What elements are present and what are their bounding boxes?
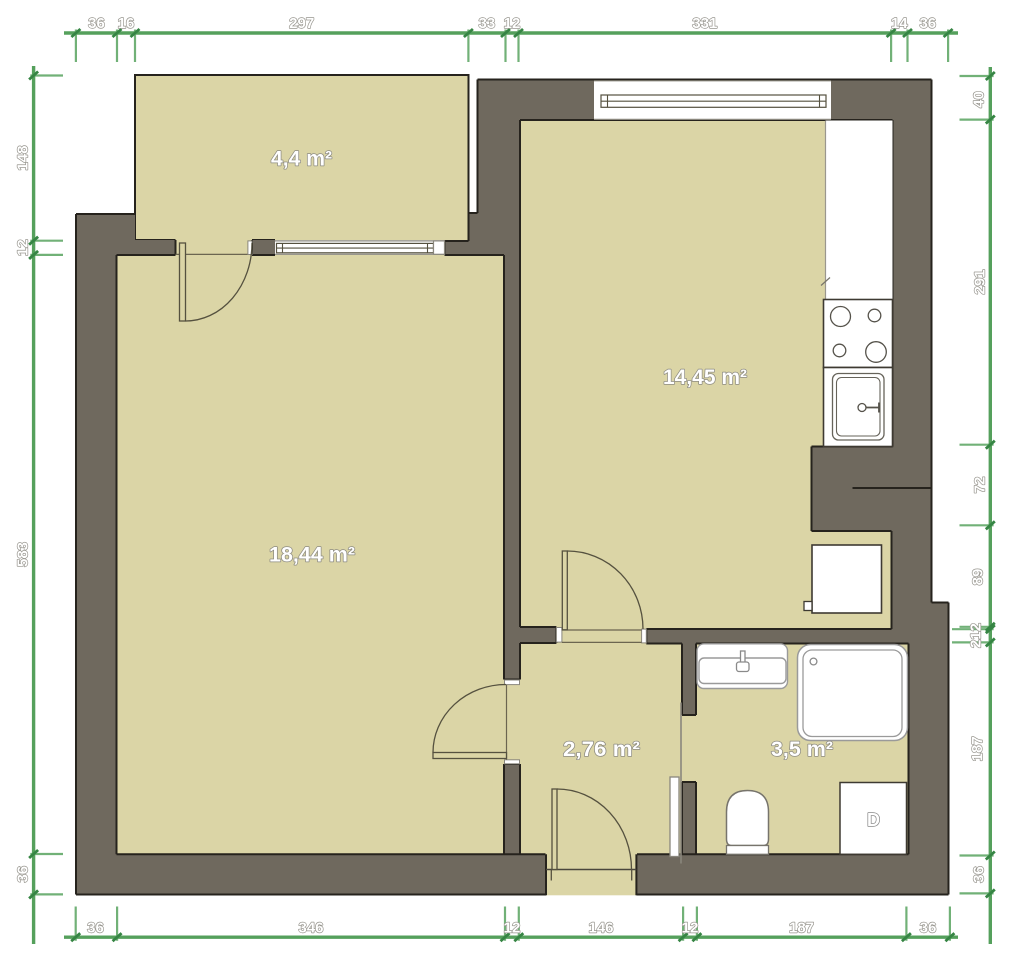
svg-text:36: 36 [919,15,936,32]
svg-text:346: 346 [298,920,323,937]
svg-text:12: 12 [504,920,521,937]
svg-text:14: 14 [891,15,908,32]
svg-text:18,44 m²: 18,44 m² [269,544,355,567]
svg-text:89: 89 [970,569,987,586]
svg-text:146: 146 [588,920,613,937]
svg-text:12: 12 [504,15,521,32]
svg-text:148: 148 [15,146,32,171]
svg-text:331: 331 [692,15,717,32]
svg-text:33: 33 [479,15,496,32]
svg-text:36: 36 [88,15,105,32]
svg-text:291: 291 [972,269,989,294]
svg-text:583: 583 [15,542,32,567]
svg-text:12: 12 [682,920,699,937]
svg-text:212: 212 [968,623,985,648]
svg-text:36: 36 [15,866,32,883]
svg-text:187: 187 [789,920,814,937]
svg-text:4,4 m²: 4,4 m² [271,148,332,171]
svg-text:3,5 m²: 3,5 m² [771,738,833,761]
svg-text:72: 72 [972,477,989,494]
svg-text:36: 36 [87,920,104,937]
svg-text:D: D [867,810,880,830]
svg-text:36: 36 [971,866,988,883]
svg-text:16: 16 [118,15,135,32]
svg-text:297: 297 [289,15,314,32]
svg-text:2,76 m²: 2,76 m² [563,738,640,761]
svg-text:12: 12 [15,239,32,256]
svg-text:187: 187 [969,736,986,761]
svg-text:36: 36 [920,920,937,937]
svg-text:40: 40 [971,91,988,108]
svg-text:14,45 m²: 14,45 m² [663,366,747,389]
